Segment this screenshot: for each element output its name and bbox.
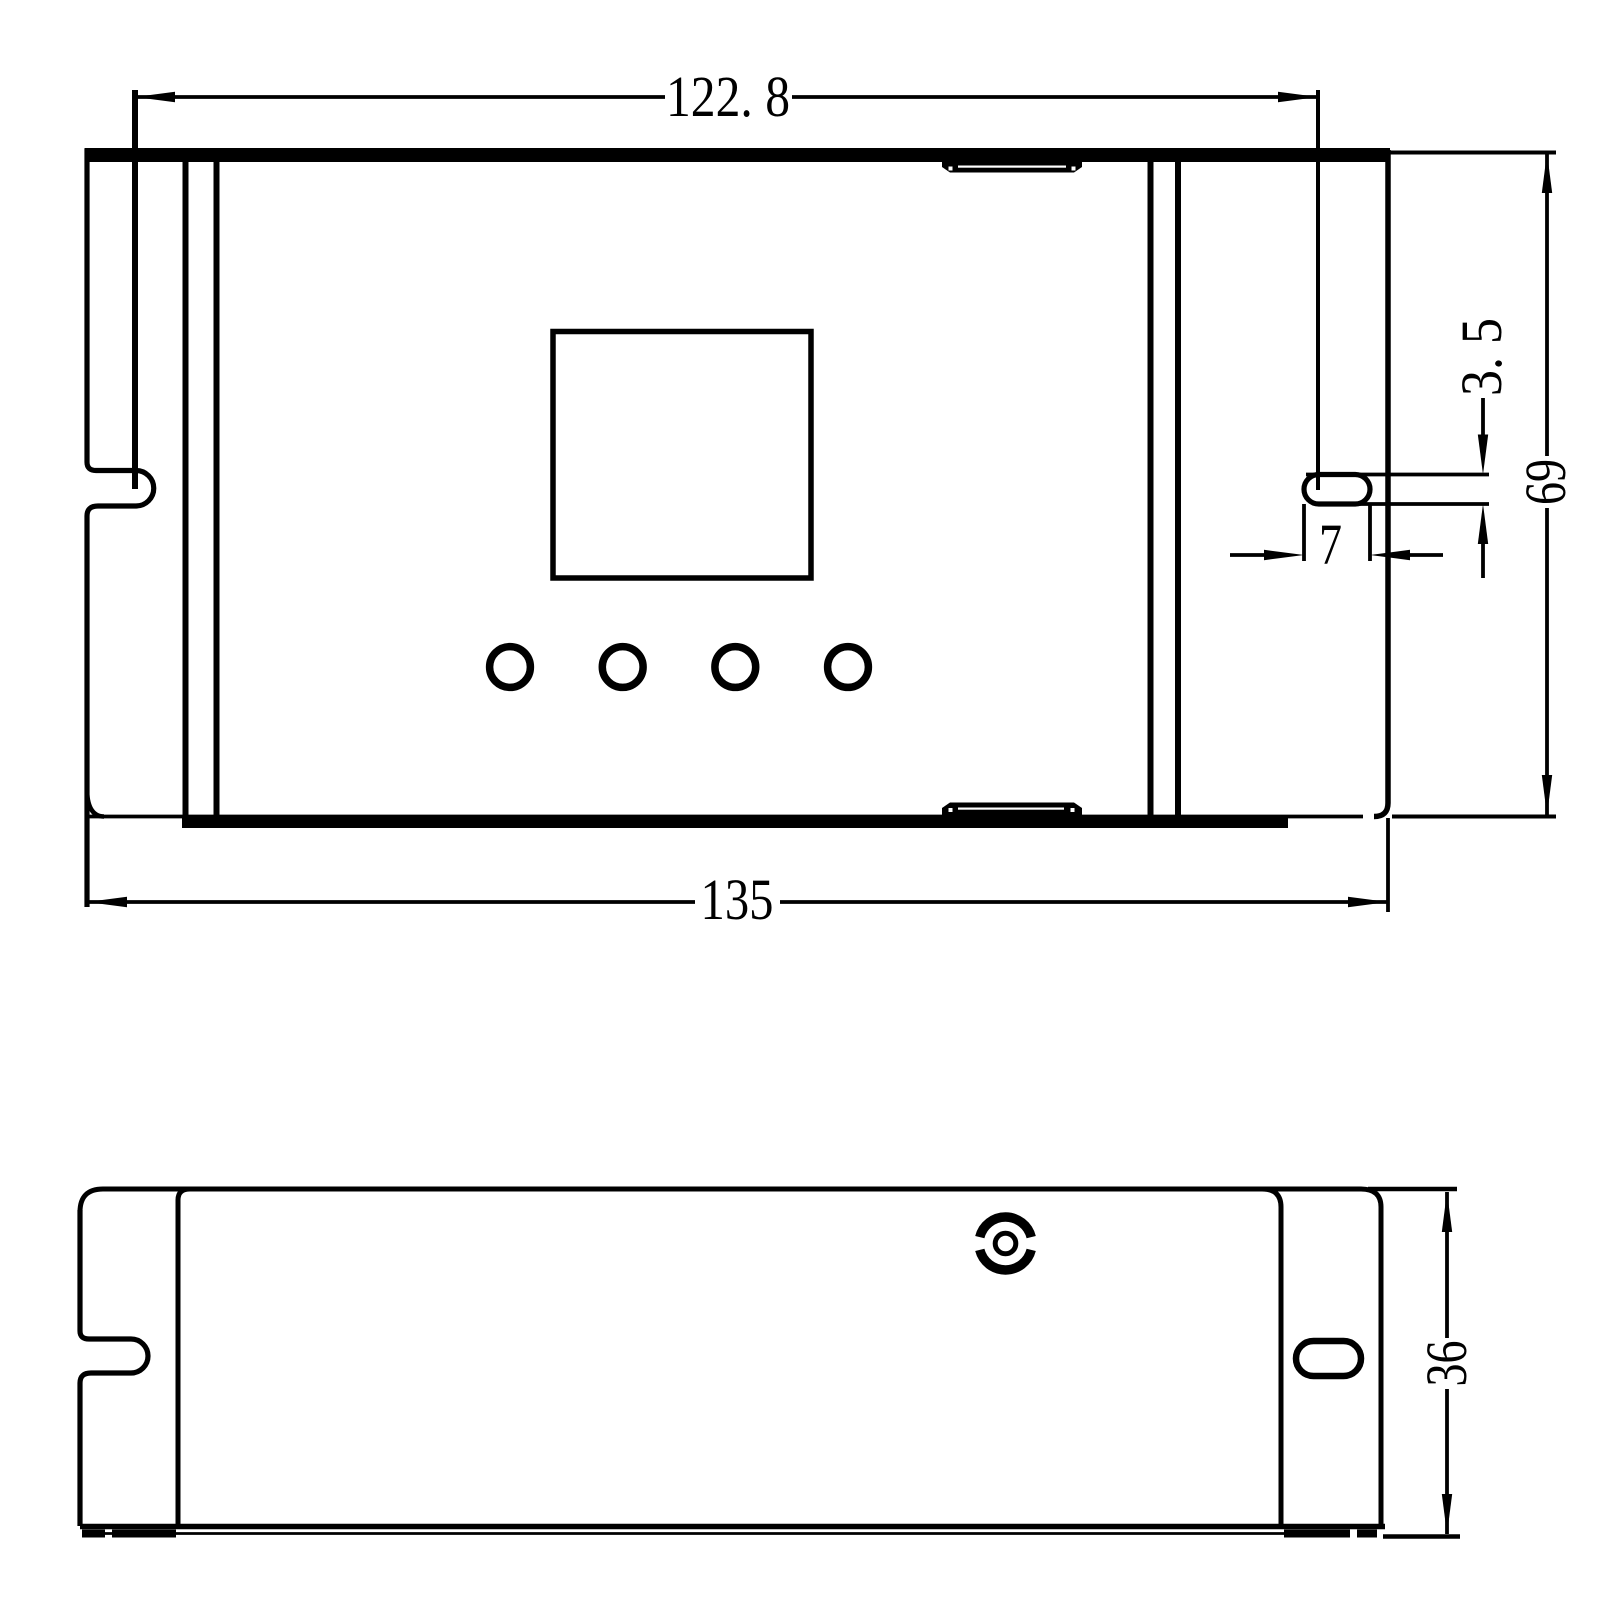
svg-text:122. 8: 122. 8 bbox=[666, 64, 790, 129]
svg-text:69: 69 bbox=[1513, 459, 1578, 505]
svg-text:7: 7 bbox=[1319, 512, 1342, 577]
svg-text:36: 36 bbox=[1414, 1341, 1479, 1387]
svg-text:3. 5: 3. 5 bbox=[1449, 318, 1514, 396]
svg-text:135: 135 bbox=[701, 867, 774, 932]
